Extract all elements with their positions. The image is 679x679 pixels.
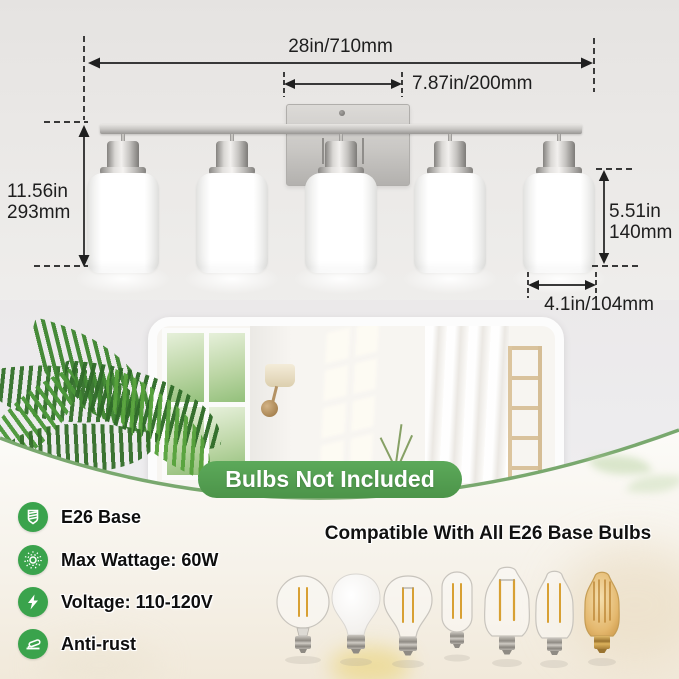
product-infographic: 28in/710mm 7.87in/200mm 11.56in 293mm 5.… [0, 0, 679, 679]
max-wattage-icon [18, 545, 48, 575]
feature-item-anti-rust: Anti-rust [18, 629, 136, 659]
globe-filament-bulb [277, 576, 329, 653]
bulb-lineup [272, 558, 672, 679]
a19-filament-bulb [384, 576, 432, 656]
voltage-icon [18, 587, 48, 617]
feature-label: Max Wattage: 60W [61, 550, 218, 571]
tubular-filament-bulb [442, 572, 472, 648]
dimension-label-spacing: 7.87in/200mm [412, 73, 532, 94]
feature-item-voltage: Voltage: 110-120V [18, 587, 213, 617]
wall-sconce [265, 364, 295, 387]
amber-edison-bulb [585, 572, 619, 653]
bulbs-not-included-badge: Bulbs Not Included [198, 461, 462, 498]
dimension-label-overall-width: 28in/710mm [90, 36, 591, 57]
feature-label: Anti-rust [61, 634, 136, 655]
feature-label: Voltage: 110-120V [61, 592, 213, 613]
frosted-a19-bulb [332, 574, 380, 654]
badge-label: Bulbs Not Included [225, 466, 435, 493]
st64-filament-bulb [485, 567, 530, 654]
feature-item-max-wattage: Max Wattage: 60W [18, 545, 218, 575]
dimension-label-overall-height: 11.56in 293mm [7, 181, 70, 223]
anti-rust-icon [18, 629, 48, 659]
compatibility-title: Compatible With All E26 Base Bulbs [308, 523, 668, 545]
dimension-label-shade-width: 4.1in/104mm [524, 294, 674, 315]
feature-item-e26-base: E26 Base [18, 502, 141, 532]
e26-base-icon [18, 502, 48, 532]
feature-label: E26 Base [61, 507, 141, 528]
dimension-label-shade-height: 5.51in 140mm [609, 201, 672, 243]
st58-filament-bulb [536, 571, 573, 655]
